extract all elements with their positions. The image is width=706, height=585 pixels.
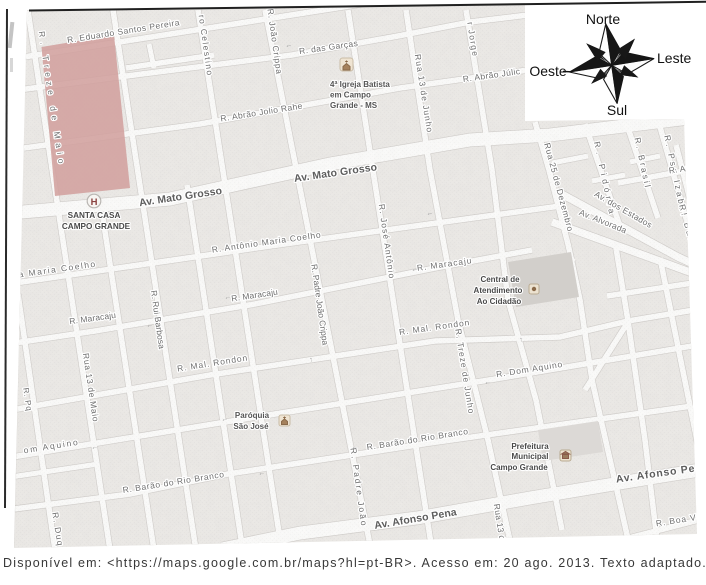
svg-text:Municipal: Municipal (512, 452, 549, 461)
svg-text:Campo Grande: Campo Grande (490, 463, 548, 472)
svg-text:←: ← (426, 210, 434, 218)
svg-text:Sul: Sul (607, 102, 627, 118)
svg-text:←: ← (224, 294, 232, 302)
svg-text:H: H (91, 197, 98, 208)
svg-text:Oeste: Oeste (529, 63, 567, 79)
svg-text:4ª Igreja Batista: 4ª Igreja Batista (330, 80, 390, 89)
svg-text:←: ← (518, 336, 526, 344)
svg-text:←: ← (484, 379, 492, 387)
svg-text:←: ← (411, 266, 419, 274)
svg-text:SANTA CASA: SANTA CASA (68, 211, 121, 220)
svg-text:Ao Cidadão: Ao Cidadão (477, 297, 522, 306)
svg-text:←: ← (146, 322, 154, 330)
svg-text:←: ← (285, 42, 293, 50)
svg-text:Paróquia: Paróquia (235, 411, 270, 420)
svg-text:Central de: Central de (480, 275, 520, 284)
svg-text:Grande - MS: Grande - MS (330, 101, 378, 110)
svg-text:em Campo: em Campo (330, 91, 371, 100)
svg-text:Norte: Norte (586, 11, 620, 27)
svg-text:←: ← (258, 470, 266, 478)
svg-text:Leste: Leste (657, 50, 691, 66)
svg-text:←: ← (91, 444, 99, 452)
svg-text:São José: São José (233, 422, 269, 431)
svg-text:←: ← (221, 416, 229, 424)
svg-text:Disponível em: <https://maps.g: Disponível em: <https://maps.google.com.… (3, 556, 706, 570)
svg-text:CAMPO GRANDE: CAMPO GRANDE (62, 222, 131, 231)
svg-text:Atendimento: Atendimento (474, 286, 523, 295)
svg-text:←: ← (351, 444, 359, 452)
svg-text:←: ← (308, 356, 316, 364)
svg-text:Prefeitura: Prefeitura (511, 442, 549, 451)
